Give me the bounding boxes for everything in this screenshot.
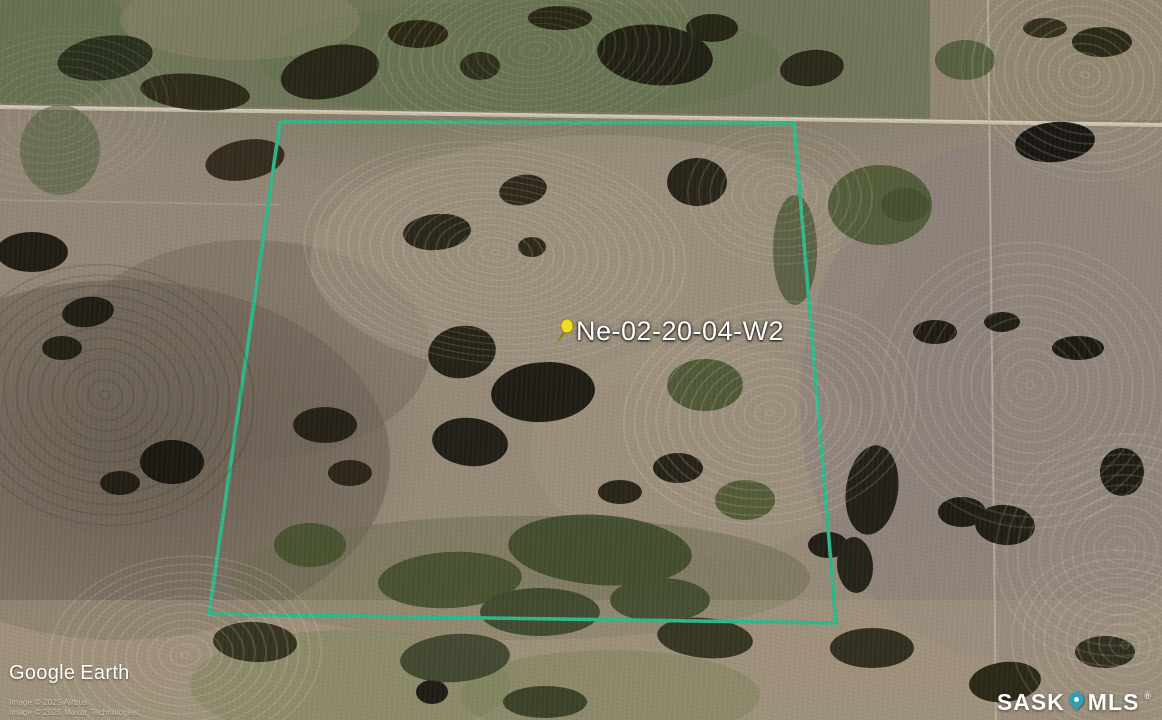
mls-pin-dot xyxy=(1074,697,1079,702)
google-earth-logo-earth: Earth xyxy=(80,662,129,684)
parcel-label: Ne-02-20-04-W2 xyxy=(576,316,784,347)
google-earth-logo: GoogleEarth xyxy=(9,662,130,685)
registered-mark: ® xyxy=(1144,691,1152,701)
sask-text: SASK xyxy=(997,689,1065,716)
saskmls-logo: SASK MLS ® xyxy=(997,689,1152,716)
field-regions xyxy=(0,120,1162,720)
imagery-attribution-line-1: Image © 2025 Airbus xyxy=(9,698,88,707)
mls-pin-icon xyxy=(1069,692,1084,712)
google-earth-logo-google: Google xyxy=(9,662,75,684)
satellite-imagery xyxy=(0,0,1162,720)
map-viewport[interactable]: Ne-02-20-04-W2 GoogleEarth Image © 2025 … xyxy=(0,0,1162,720)
mls-text: MLS xyxy=(1088,689,1140,716)
imagery-attribution-line-2: Image © 2025 Maxar Technologies xyxy=(9,708,139,717)
